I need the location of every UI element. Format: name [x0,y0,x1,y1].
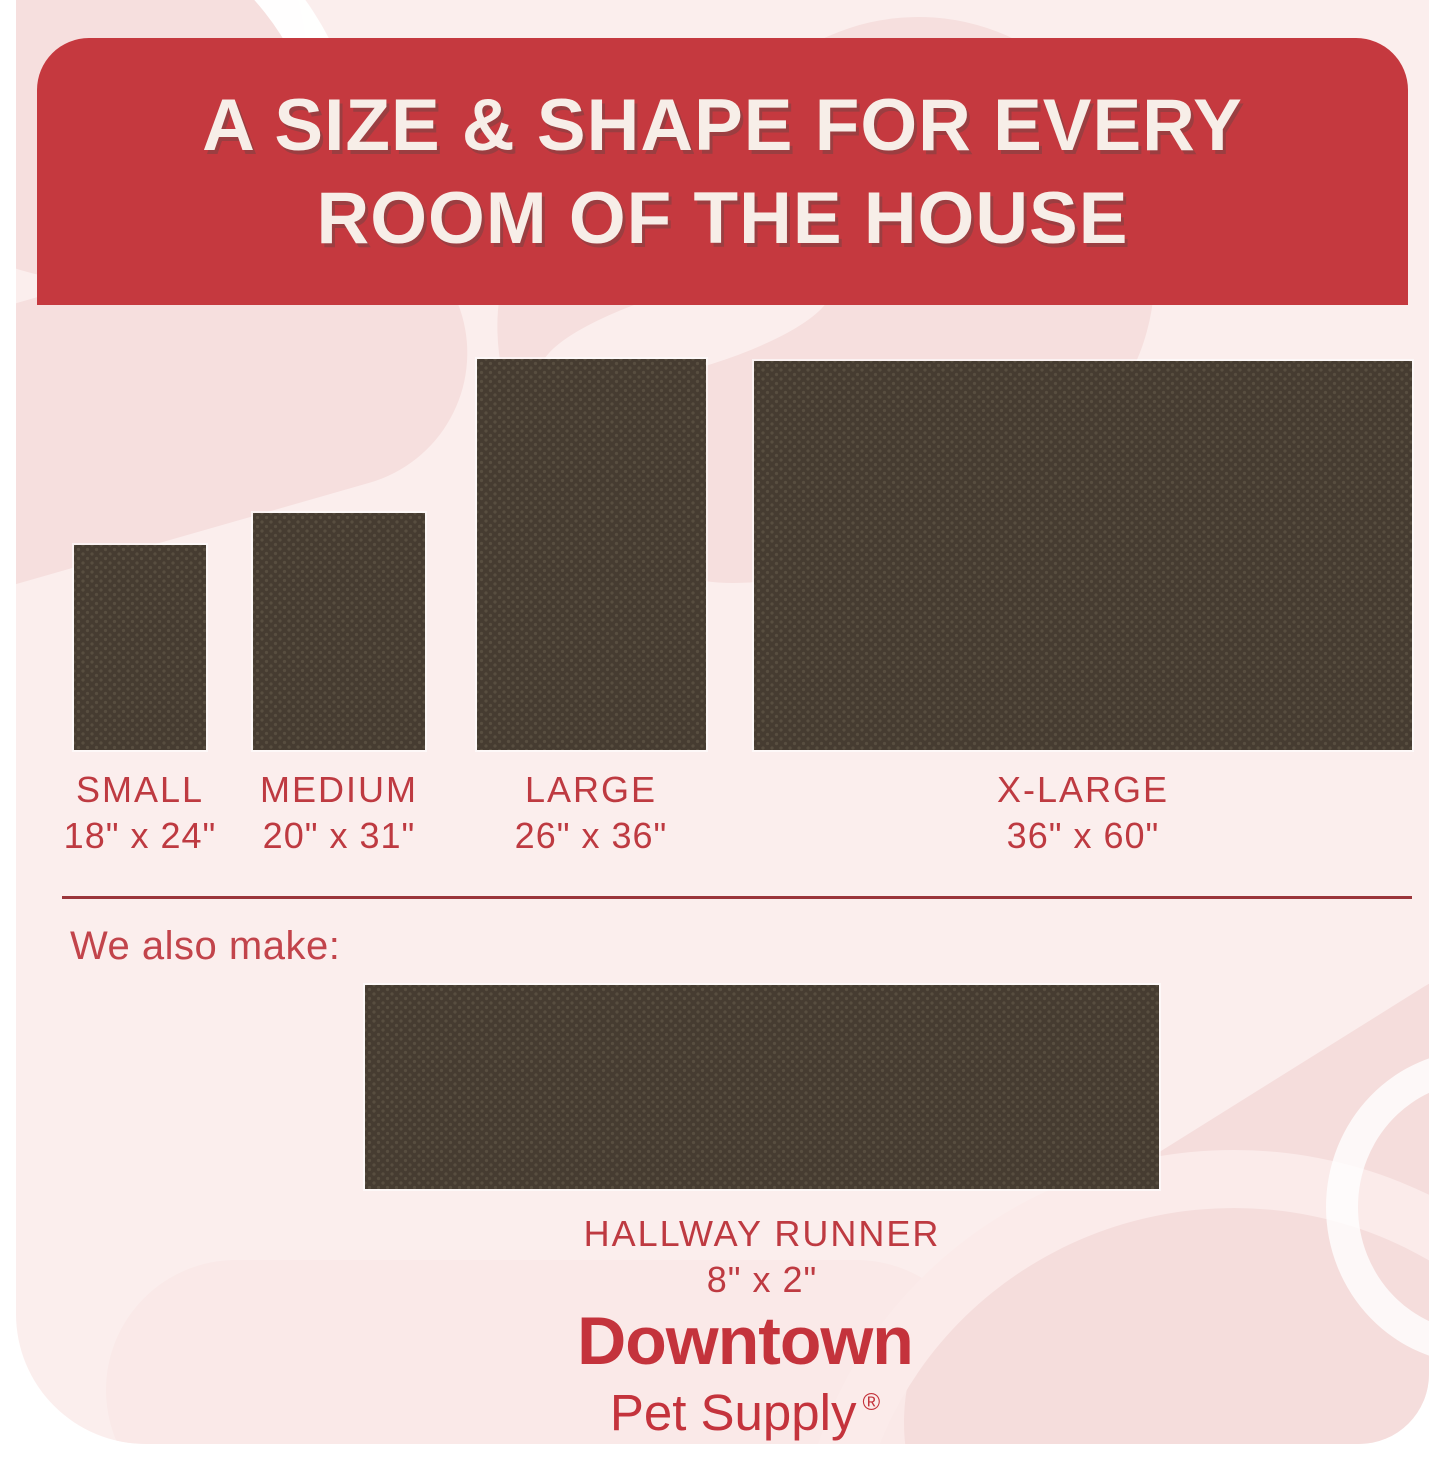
size-label-large: LARGE 26" x 36" [491,768,691,860]
page-title-line-2: ROOM OF THE HOUSE [317,172,1129,265]
size-name-medium: MEDIUM [239,768,439,812]
mat-medium [253,513,425,750]
size-name-small: SMALL [40,768,240,812]
brand-name: Downtown [445,1306,1045,1376]
infographic-page: A SIZE & SHAPE FOR EVERY ROOM OF THE HOU… [0,0,1445,1482]
size-dimensions-xlarge: 36" x 60" [943,812,1223,860]
size-dimensions-large: 26" x 36" [491,812,691,860]
section-divider [62,896,1412,899]
size-label-medium: MEDIUM 20" x 31" [239,768,439,860]
size-dimensions-hallway-runner: 8" x 2" [512,1256,1012,1304]
size-dimensions-small: 18" x 24" [40,812,240,860]
size-dimensions-medium: 20" x 31" [239,812,439,860]
brand-subtitle: Pet Supply® [445,1376,1045,1440]
mat-xlarge [754,361,1412,750]
page-title-line-1: A SIZE & SHAPE FOR EVERY [202,79,1243,172]
header-banner: A SIZE & SHAPE FOR EVERY ROOM OF THE HOU… [37,38,1408,305]
mat-small [74,545,206,750]
size-label-small: SMALL 18" x 24" [40,768,240,860]
brand-subtitle-text: Pet Supply [610,1384,857,1441]
registered-trademark-symbol: ® [862,1389,880,1416]
mat-large [477,359,706,750]
size-name-xlarge: X-LARGE [943,768,1223,812]
brand-logo: Downtown Pet Supply® [445,1306,1045,1440]
mat-hallway-runner [365,985,1159,1189]
size-name-hallway-runner: HALLWAY RUNNER [512,1212,1012,1256]
also-make-label: We also make: [70,924,340,969]
size-name-large: LARGE [491,768,691,812]
size-label-xlarge: X-LARGE 36" x 60" [943,768,1223,860]
size-label-hallway-runner: HALLWAY RUNNER 8" x 2" [512,1212,1012,1304]
